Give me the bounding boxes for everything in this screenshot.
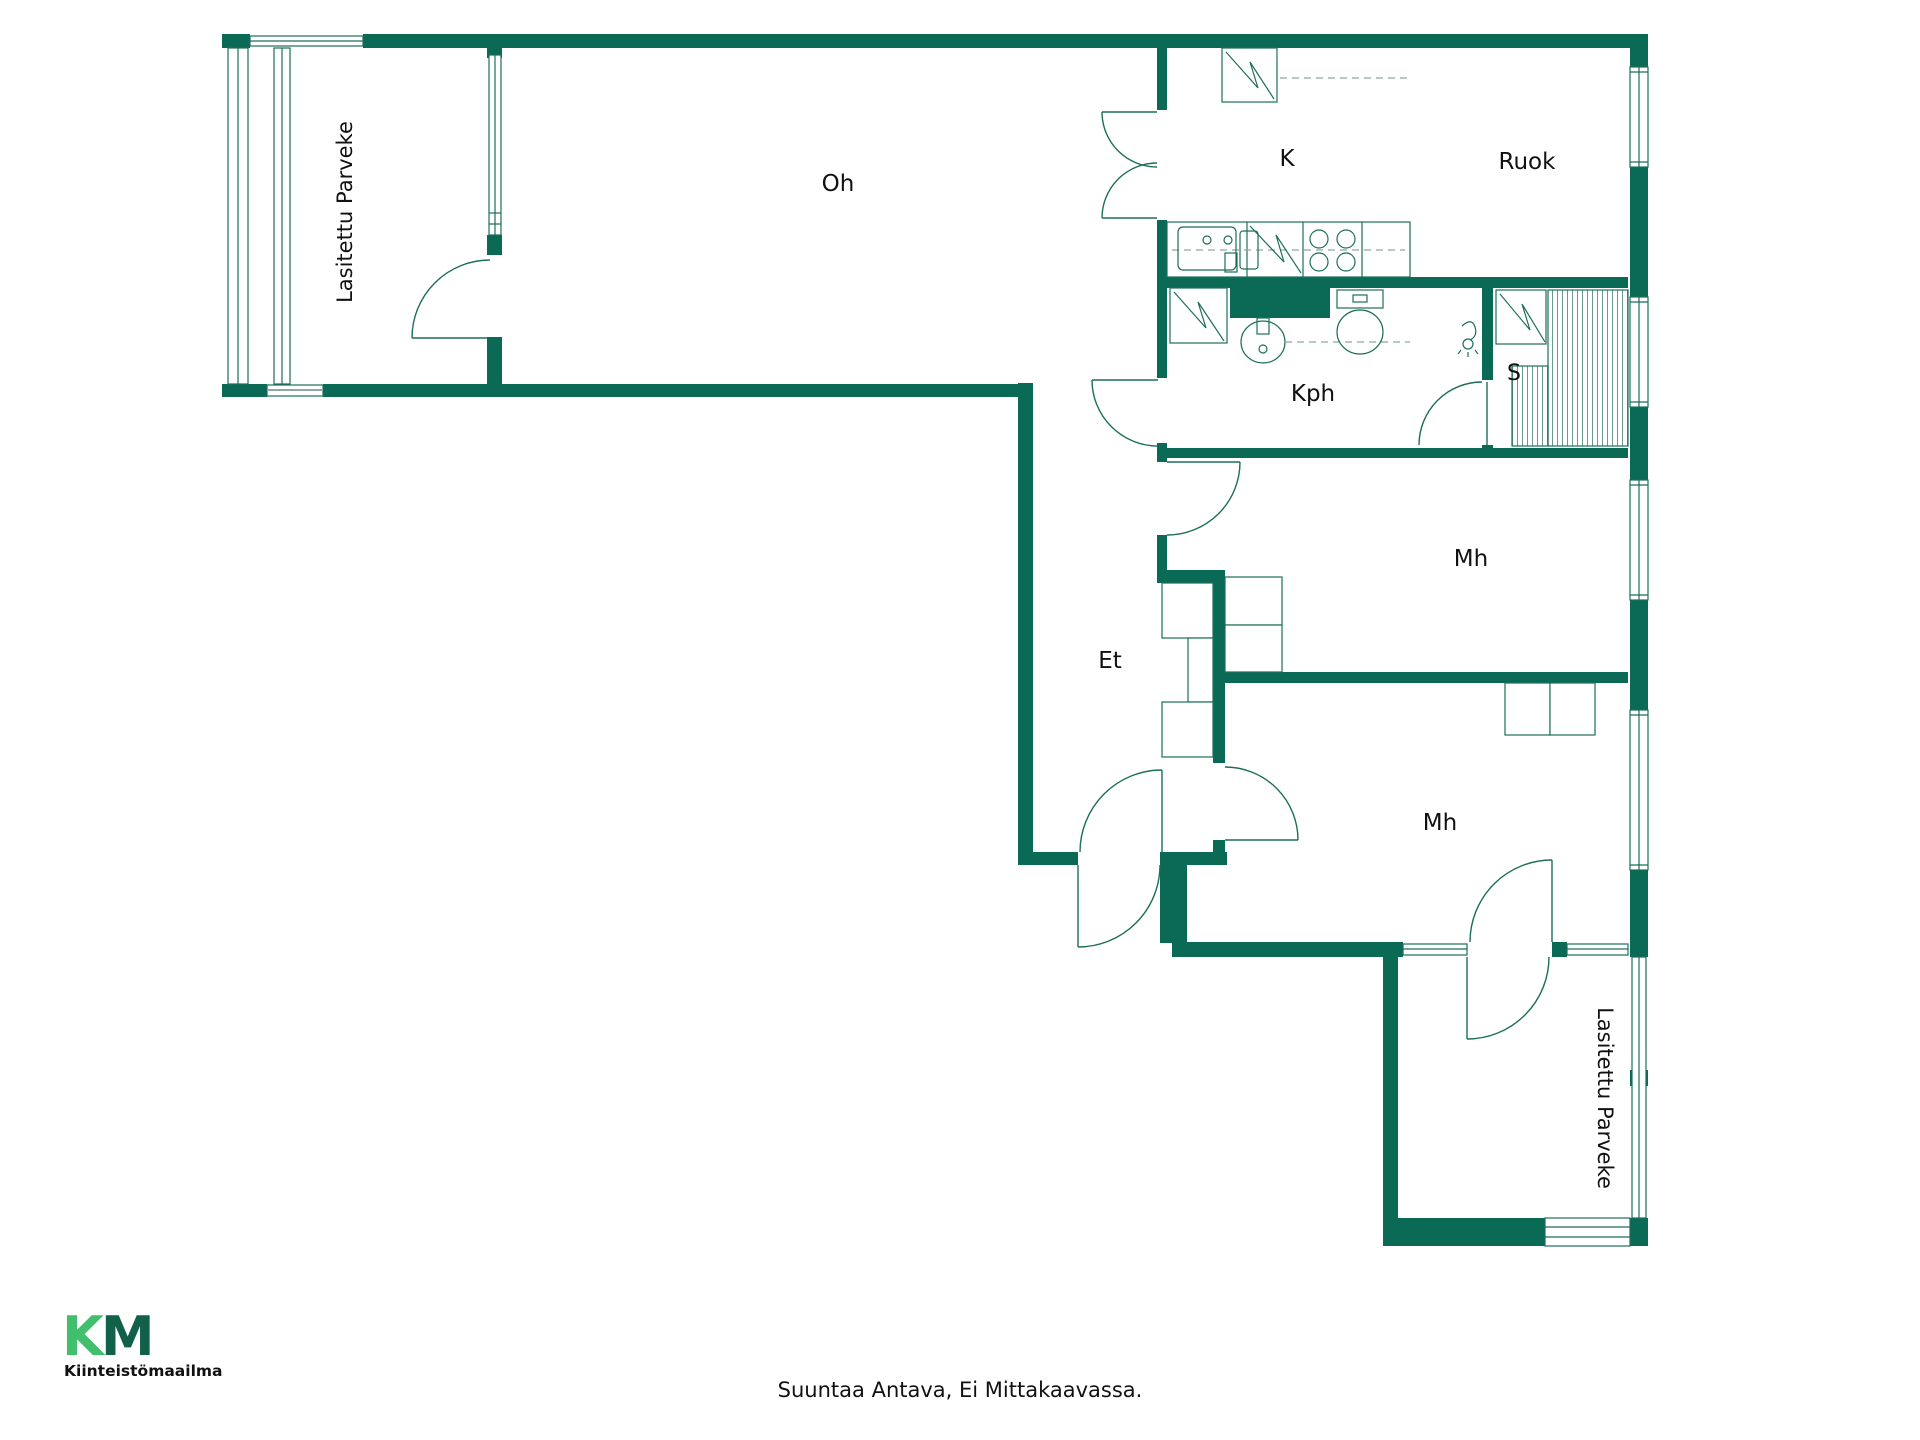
- wall: [1213, 672, 1628, 683]
- window: [1630, 297, 1648, 407]
- wall: [1630, 48, 1648, 67]
- room-label-living: Oh: [822, 171, 855, 197]
- wall: [222, 34, 250, 48]
- wall: [1630, 870, 1648, 957]
- closet: [1162, 583, 1213, 638]
- door-arc: [1419, 382, 1487, 445]
- wall: [1383, 1218, 1545, 1246]
- door-arc: [1225, 767, 1298, 840]
- wall: [222, 384, 267, 397]
- wall: [487, 235, 502, 255]
- door-arc: [412, 260, 490, 338]
- wall: [1157, 277, 1628, 288]
- window: [267, 385, 323, 396]
- fridge-symbol: [1222, 48, 1407, 102]
- closet: [1162, 702, 1213, 757]
- wall: [1630, 407, 1648, 480]
- closet: [1225, 625, 1282, 672]
- washing-machine-symbol: [1170, 288, 1227, 343]
- door-arc: [1092, 380, 1158, 446]
- room-label-balcony-bottom: Lasitettu Parveke: [1593, 1007, 1617, 1189]
- wall: [1172, 942, 1403, 957]
- balcony-glazing: [1632, 957, 1646, 1218]
- wall: [1482, 288, 1493, 380]
- doors: [412, 112, 1552, 1039]
- wall: [1018, 852, 1078, 865]
- wall: [1630, 600, 1648, 710]
- walls: [222, 34, 1648, 1246]
- wall: [1160, 852, 1187, 943]
- fixtures: [1162, 48, 1628, 757]
- window: [1630, 710, 1648, 870]
- room-label-balcony-top: Lasitettu Parveke: [333, 121, 357, 303]
- closet: [1188, 638, 1213, 702]
- room-label-sauna: S: [1507, 361, 1521, 386]
- shower-symbol: [1458, 322, 1478, 357]
- sauna-benches: [1512, 290, 1628, 446]
- room-label-bedroom-bottom: Mh: [1423, 810, 1457, 836]
- wall: [487, 337, 502, 397]
- washbasin-symbol: [1241, 318, 1410, 363]
- wall: [1630, 167, 1648, 297]
- closets: [1162, 577, 1595, 757]
- toilet-symbol: [1337, 290, 1383, 354]
- wall: [323, 384, 1033, 397]
- door-arc: [1467, 860, 1552, 1039]
- room-label-bathroom: Kph: [1291, 381, 1335, 407]
- km-logo-icon: KM: [62, 1305, 152, 1368]
- room-label-bedroom-top: Mh: [1454, 546, 1488, 572]
- wall: [1157, 288, 1167, 378]
- wall: [1157, 448, 1628, 458]
- wall: [1482, 445, 1493, 458]
- closet: [1225, 577, 1282, 625]
- wall: [1552, 942, 1567, 957]
- wall: [1383, 957, 1398, 1246]
- windows: [228, 36, 1648, 1246]
- window: [1630, 67, 1648, 167]
- wall: [1157, 570, 1225, 583]
- duct-block: [1230, 288, 1330, 318]
- floorplan-drawing: Lasitettu Parveke Oh K Ruok Kph S Mh Et …: [0, 0, 1920, 1440]
- wall: [1157, 48, 1167, 110]
- window: [1403, 944, 1467, 955]
- closet: [1550, 683, 1595, 735]
- room-label-dining: Ruok: [1499, 149, 1557, 175]
- wall: [1018, 383, 1033, 865]
- closet: [1505, 683, 1550, 735]
- window: [489, 55, 501, 235]
- door-arc: [1102, 112, 1157, 218]
- wall: [1187, 852, 1227, 865]
- window: [1545, 1218, 1630, 1246]
- window: [1630, 480, 1648, 600]
- room-label-hall: Et: [1098, 648, 1122, 674]
- door-arc: [1078, 770, 1162, 947]
- wall: [363, 34, 1648, 48]
- room-label-kitchen: K: [1279, 146, 1295, 172]
- window: [1567, 944, 1628, 955]
- kitchen-counter: [1167, 222, 1410, 277]
- balcony-glazing: [228, 48, 290, 384]
- door-arc: [1167, 462, 1240, 535]
- disclaimer-caption: Suuntaa Antava, Ei Mittakaavassa.: [778, 1378, 1143, 1402]
- floorplan-page: Lasitettu Parveke Oh K Ruok Kph S Mh Et …: [0, 0, 1920, 1440]
- brand-logo: KM Kiinteistömaailma: [62, 1305, 223, 1380]
- window: [250, 36, 363, 46]
- wall: [1630, 1218, 1648, 1246]
- logo-company-name: Kiinteistömaailma: [64, 1362, 223, 1380]
- sauna-heater-symbol: [1496, 290, 1546, 344]
